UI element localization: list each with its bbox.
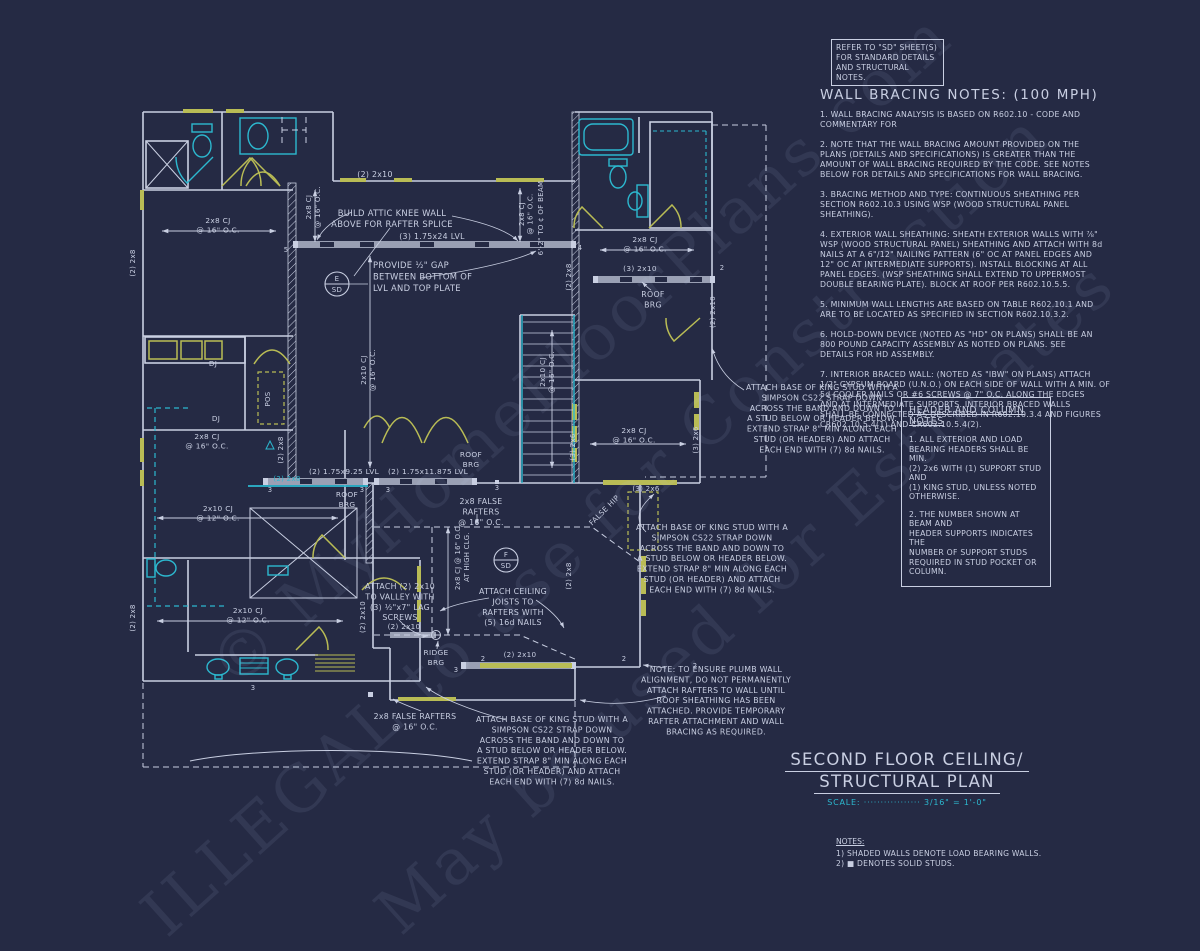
doors-and-headers [140,109,700,701]
header-column-note-2: 2. THE NUMBER SHOWN AT BEAM AND HEADER S… [909,510,1043,577]
plan-labels: (2) 2x102x8 CJ@ 16" O.C.BUILD ATTIC KNEE… [129,170,898,786]
plan-label-tick-3f: 3 [251,684,256,692]
plan-label-tick-5: 5 [284,246,289,254]
plan-label-dim-2x8cj-b: 2x8 CJ@ 16" O.C. [518,193,535,234]
plan-label-tick-4: 4 [578,244,583,252]
header-column-notes-box: HEADER AND COLUMN NOTES 1. ALL EXTERIOR … [901,397,1051,587]
header-column-note-1: 1. ALL EXTERIOR AND LOAD BEARING HEADERS… [909,435,1043,502]
plan-label-attach-note-3: ATTACH BASE OF KING STUD WITH ASIMPSON C… [476,715,628,786]
plan-label-lvl-24: (3) 1.75x24 LVL [399,232,465,241]
wall-bracing-title: WALL BRACING NOTES: (100 MPH) [820,87,1178,103]
plan-label-circle-f: F [504,551,508,559]
plan-label-roof-brg-tr: ROOFBRG [641,290,665,310]
plan-label-roof-brg-a: ROOFBRG [336,490,358,509]
wall-bracing-notes: WALL BRACING NOTES: (100 MPH) 1. WALL BR… [820,87,1178,440]
wall-bracing-note-5: 5. MINIMUM WALL LENGTHS ARE BASED ON TAB… [820,300,1178,320]
plan-label-dim-2x10cj-mb: 2x10 CJ@ 12" O.C. [196,504,239,523]
plan-label-gap-note: PROVIDE ½" GAPBETWEEN BOTTOM OFLVL AND T… [373,260,472,293]
plan-label-knee-wall-note: BUILD ATTIC KNEE WALLABOVE FOR RAFTER SP… [331,208,453,229]
plan-label-v-2x10-left: (2) 2x10 [359,601,367,633]
blueprint-sheet: { "colors":{"background":"#252a44","line… [0,0,1200,900]
plan-label-lvl-925: (2) 1.75x9.25 LVL [309,467,380,476]
plan-label-tick-2b: 2 [481,655,486,663]
plan-label-dj-1: DJ [209,359,217,368]
plan-label-dim-2x8cj-tr: 2x8 CJ@ 16" O.C. [623,235,666,254]
plan-label-v-2x8-stairs: (2) 2x8 [565,263,573,290]
plan-label-dim-2x8cj-tl: 2x8 CJ@ 16" O.C. [196,216,239,235]
plan-label-hdr-2x10-ridge: (2) 2x10 [388,622,421,631]
plan-label-v-2x8-hall: (2) 2x8 [277,436,285,463]
sheet-notes: NOTES: 1) SHADED WALLS DENOTE LOAD BEARI… [836,837,1041,870]
plan-label-v-2x8-low: (2) 2x8 [565,562,573,589]
plan-label-roof-brg-b: ROOFBRG [460,450,482,469]
header-column-notes-title: HEADER AND COLUMN NOTES [909,405,1043,427]
plan-label-false-rafters-1: 2x8 FALSERAFTERS@ 16" O.C. [458,497,503,527]
scale-label: SCALE: [827,798,860,807]
refer-sd-box: REFER TO "SD" SHEET(S) FOR STANDARD DETA… [831,39,944,86]
plan-label-hdr-3-2x10: (3) 2x10 [623,264,657,273]
plan-label-attach-note-2: ATTACH BASE OF KING STUD WITH ASIMPSON C… [636,523,788,594]
plan-label-flush-2x8: (2) 2x8 [273,475,300,483]
plan-label-hdr-2x10-bot: (2) 2x10 [504,650,537,659]
wall-bracing-note-2: 2. NOTE THAT THE WALL BRACING AMOUNT PRO… [820,140,1178,181]
scale-value: 3/16" = 1'-0" [924,798,987,807]
sheet-title-line2: STRUCTURAL PLAN [814,773,999,794]
dimension-lines [157,188,694,635]
plan-label-dim-2x8cj-mr: 2x8 CJ@ 16" O.C. [612,426,655,445]
plan-label-false-rafters-2: 2x8 FALSE RAFTERS@ 16" O.C. [374,712,457,731]
plan-label-tick-3c: 3 [386,486,391,494]
plan-label-hdr-3-2x6: (3) 2x6 [632,485,660,493]
plan-label-circle-e-sd: SD [332,286,342,294]
plan-label-dim-2x10cj-stairs: 2x10 CJ@ 16" O.C. [538,351,556,393]
wall-bracing-note-4: 4. EXTERIOR WALL SHEATHING: SHEATH EXTER… [820,230,1178,291]
plan-label-tick-3e: 3 [454,666,459,674]
plan-label-dim-highclg: 2x8 CJ @ 16" O.C.AT HIGH CLG. [454,524,471,590]
plan-label-tick-3a: 3 [268,486,273,494]
plan-label-lvl-11875: (2) 1.75x11.875 LVL [388,467,469,476]
plan-label-circle-f-sd: SD [501,562,511,570]
scale-dots: ················· [864,798,921,807]
title-block: SECOND FLOOR CEILING/ STRUCTURAL PLAN SC… [782,750,1032,807]
plan-label-ridge-brg: RIDGEBRG [424,648,449,667]
sheet-notes-title: NOTES: [836,837,1041,848]
plan-label-dj-2: DJ [212,414,220,423]
plan-label-stud-3-2x6-l: (3) 2x6 [569,433,577,461]
plan-label-tick-3d: 3 [495,484,500,492]
plan-label-dim-to-beam: 6'-2" TO ¢ OF BEAM [537,181,545,256]
plan-label-circle-e: E [335,275,340,283]
plan-label-stud-2x8-left-top: (2) 2x8 [129,249,137,276]
plan-label-valley-note: ATTACH (2) 2x10TO VALLEY WITH(3) ½"x7" L… [364,582,435,622]
plan-label-pos: POS [264,391,272,406]
plan-label-cj-attach-note: ATTACH CEILINGJOISTS TORAFTERS WITH(5) 1… [479,587,547,627]
plan-label-dim-2x8cj-a: 2x8 CJ@ 16" O.C. [304,186,322,228]
wall-bracing-note-3: 3. BRACING METHOD AND TYPE: CONTINUOUS S… [820,190,1178,220]
stair-treads [523,322,573,475]
plan-label-hdr-2x10-top: (2) 2x10 [357,170,392,179]
plan-label-stud-2x8-left-bot: (2) 2x8 [129,604,137,631]
sheet-notes-items: 1) SHADED WALLS DENOTE LOAD BEARING WALL… [836,849,1041,870]
plan-label-tick-3b: 3 [360,486,365,494]
plan-label-tick-2d: 2 [693,662,698,670]
plan-label-dim-2x10cj-mid: 2x10 CJ@ 16" O.C. [359,349,377,391]
plan-label-stud-3-2x6-r: (3) 2x6 [692,426,700,454]
plan-label-dim-2x10cj-bath: 2x10 CJ@ 12" O.C. [226,606,269,625]
plan-label-false-hip: FALSE HIP [587,493,621,527]
sheet-title-line1: SECOND FLOOR CEILING/ [785,751,1028,772]
plan-label-plumb-note: NOTE: TO ENSURE PLUMB WALLALIGNMENT, DO … [641,665,791,736]
wall-bracing-note-1: 1. WALL BRACING ANALYSIS IS BASED ON R60… [820,110,1178,130]
plan-label-tick-2a: 2 [720,264,725,272]
plan-label-hdr-2x10-tr-v: (2) 2x10 [709,296,717,328]
sheet-scale: SCALE: ················· 3/16" = 1'-0" [782,798,1032,807]
plan-label-tick-2c: 2 [622,655,627,663]
wall-bracing-note-6: 6. HOLD-DOWN DEVICE (NOTED AS "HD" ON PL… [820,330,1178,360]
plan-label-dim-2x8cj-c: 2x8 CJ@ 16" O.C. [185,432,228,451]
